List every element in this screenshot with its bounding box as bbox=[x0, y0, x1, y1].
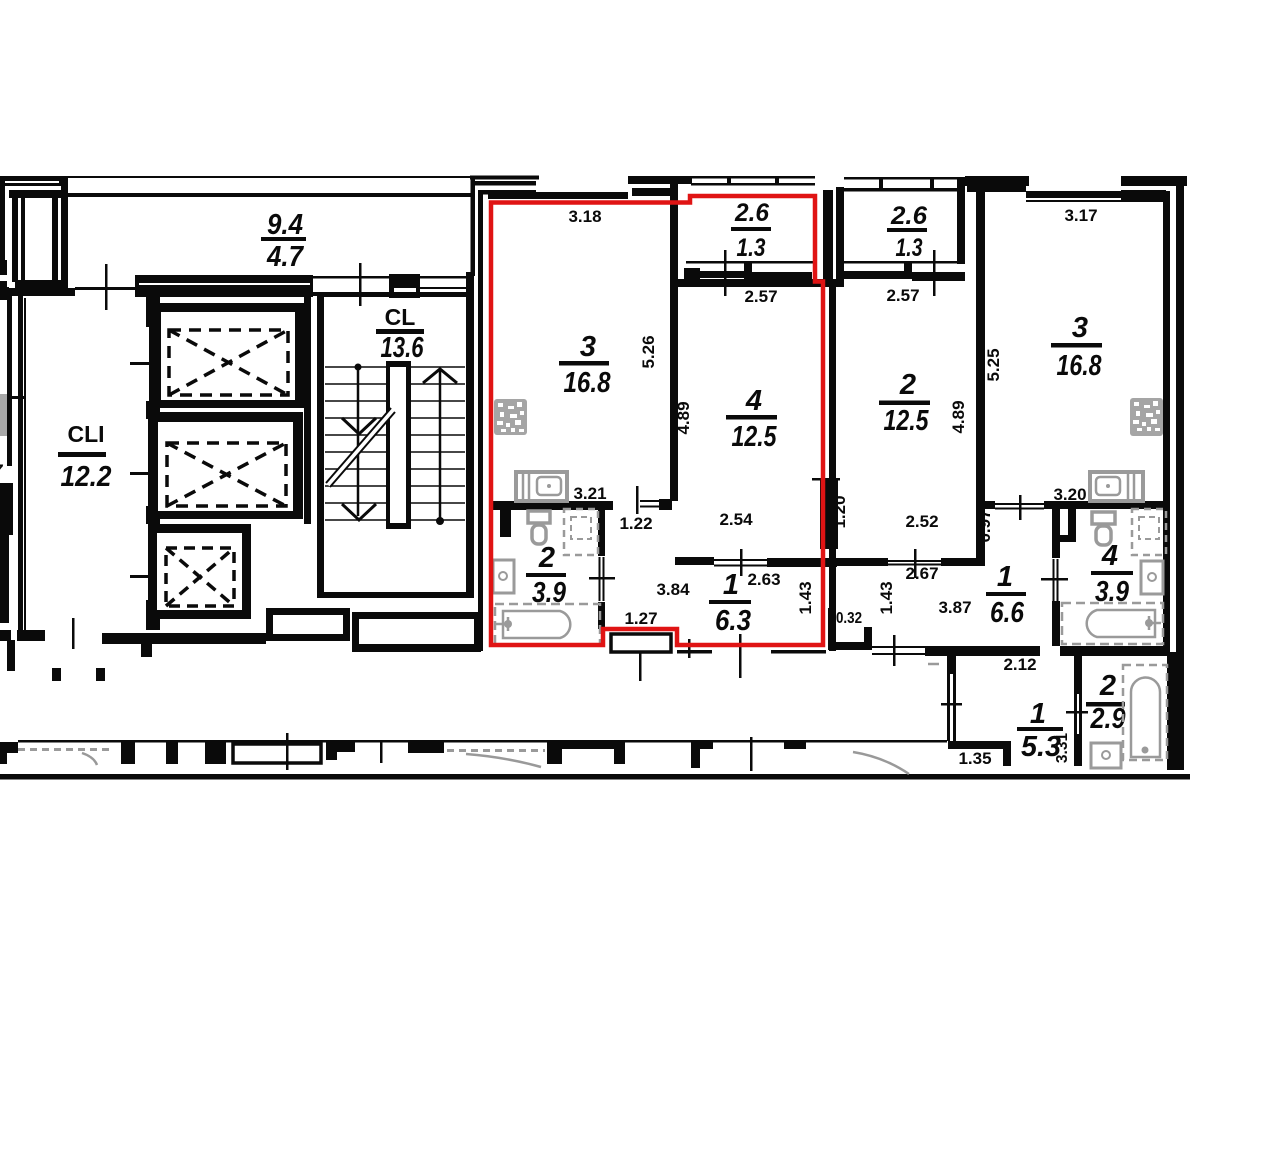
svg-text:2.54: 2.54 bbox=[719, 510, 753, 529]
svg-text:2.67: 2.67 bbox=[905, 564, 938, 583]
svg-text:3.20: 3.20 bbox=[1053, 485, 1086, 504]
svg-text:2: 2 bbox=[899, 369, 916, 401]
svg-text:1.20: 1.20 bbox=[830, 495, 849, 528]
svg-text:4.89: 4.89 bbox=[674, 401, 693, 434]
svg-text:2.57: 2.57 bbox=[886, 286, 919, 305]
svg-text:3.18: 3.18 bbox=[568, 207, 601, 226]
svg-text:2: 2 bbox=[538, 542, 555, 574]
svg-text:1: 1 bbox=[1030, 698, 1046, 730]
svg-text:3.9: 3.9 bbox=[532, 577, 566, 609]
svg-text:0.32: 0.32 bbox=[836, 610, 862, 627]
svg-text:12.2: 12.2 bbox=[61, 461, 112, 493]
svg-text:4.89: 4.89 bbox=[949, 400, 968, 433]
svg-text:2.6: 2.6 bbox=[734, 199, 770, 227]
svg-text:12.5: 12.5 bbox=[884, 405, 930, 437]
svg-text:4.7: 4.7 bbox=[266, 241, 305, 273]
svg-text:0.97: 0.97 bbox=[975, 509, 994, 542]
svg-text:1.22: 1.22 bbox=[619, 514, 652, 533]
svg-text:1.43: 1.43 bbox=[796, 581, 815, 614]
svg-text:1.3: 1.3 bbox=[737, 234, 766, 262]
svg-text:16.8: 16.8 bbox=[1057, 350, 1103, 382]
svg-text:CLI: CLI bbox=[67, 421, 104, 447]
svg-text:1.35: 1.35 bbox=[958, 749, 991, 768]
svg-text:2.57: 2.57 bbox=[744, 287, 777, 306]
svg-text:1.43: 1.43 bbox=[877, 581, 896, 614]
svg-text:4: 4 bbox=[745, 385, 762, 417]
svg-text:3: 3 bbox=[1072, 312, 1088, 344]
svg-text:1: 1 bbox=[723, 569, 739, 601]
svg-text:CL: CL bbox=[385, 304, 416, 330]
svg-text:3.84: 3.84 bbox=[656, 580, 690, 599]
svg-text:6.6: 6.6 bbox=[990, 597, 1025, 629]
svg-text:6.3: 6.3 bbox=[715, 605, 751, 637]
svg-text:2.52: 2.52 bbox=[905, 512, 938, 531]
svg-text:3.17: 3.17 bbox=[1064, 206, 1097, 225]
svg-text:5.25: 5.25 bbox=[984, 348, 1003, 381]
svg-text:16.8: 16.8 bbox=[564, 367, 612, 399]
svg-text:3.31: 3.31 bbox=[1054, 733, 1071, 764]
svg-text:1.3: 1.3 bbox=[896, 234, 923, 262]
svg-text:3.9: 3.9 bbox=[1095, 576, 1129, 608]
svg-text:9.4: 9.4 bbox=[267, 209, 303, 241]
svg-text:1.27: 1.27 bbox=[624, 609, 657, 628]
svg-text:3.87: 3.87 bbox=[938, 598, 971, 617]
svg-text:2.6: 2.6 bbox=[890, 202, 928, 230]
svg-text:4: 4 bbox=[1101, 540, 1118, 572]
svg-text:5.26: 5.26 bbox=[639, 335, 658, 368]
svg-text:2: 2 bbox=[1099, 670, 1116, 702]
svg-text:13.6: 13.6 bbox=[381, 332, 425, 364]
svg-text:3: 3 bbox=[580, 331, 596, 363]
svg-text:12.5: 12.5 bbox=[732, 421, 778, 453]
svg-text:2.9: 2.9 bbox=[1090, 703, 1126, 735]
svg-text:2.63: 2.63 bbox=[747, 570, 780, 589]
svg-text:2.12: 2.12 bbox=[1003, 655, 1036, 674]
svg-text:1: 1 bbox=[997, 561, 1013, 593]
svg-text:3.21: 3.21 bbox=[573, 484, 606, 503]
